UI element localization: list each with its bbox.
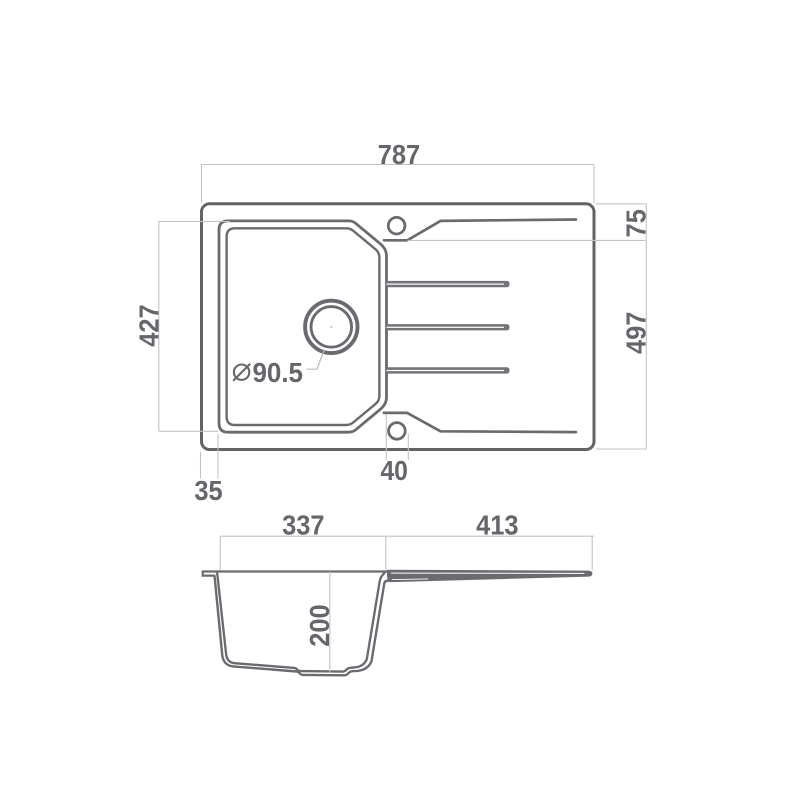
svg-text:413: 413 bbox=[476, 510, 518, 541]
svg-text:90.5: 90.5 bbox=[253, 357, 304, 388]
svg-text:427: 427 bbox=[133, 304, 164, 346]
svg-text:200: 200 bbox=[304, 604, 335, 646]
svg-text:337: 337 bbox=[282, 510, 324, 541]
svg-text:40: 40 bbox=[380, 455, 408, 486]
svg-text:75: 75 bbox=[620, 209, 651, 237]
svg-text:35: 35 bbox=[194, 475, 222, 506]
svg-text:497: 497 bbox=[620, 312, 651, 354]
svg-text:787: 787 bbox=[378, 139, 420, 170]
